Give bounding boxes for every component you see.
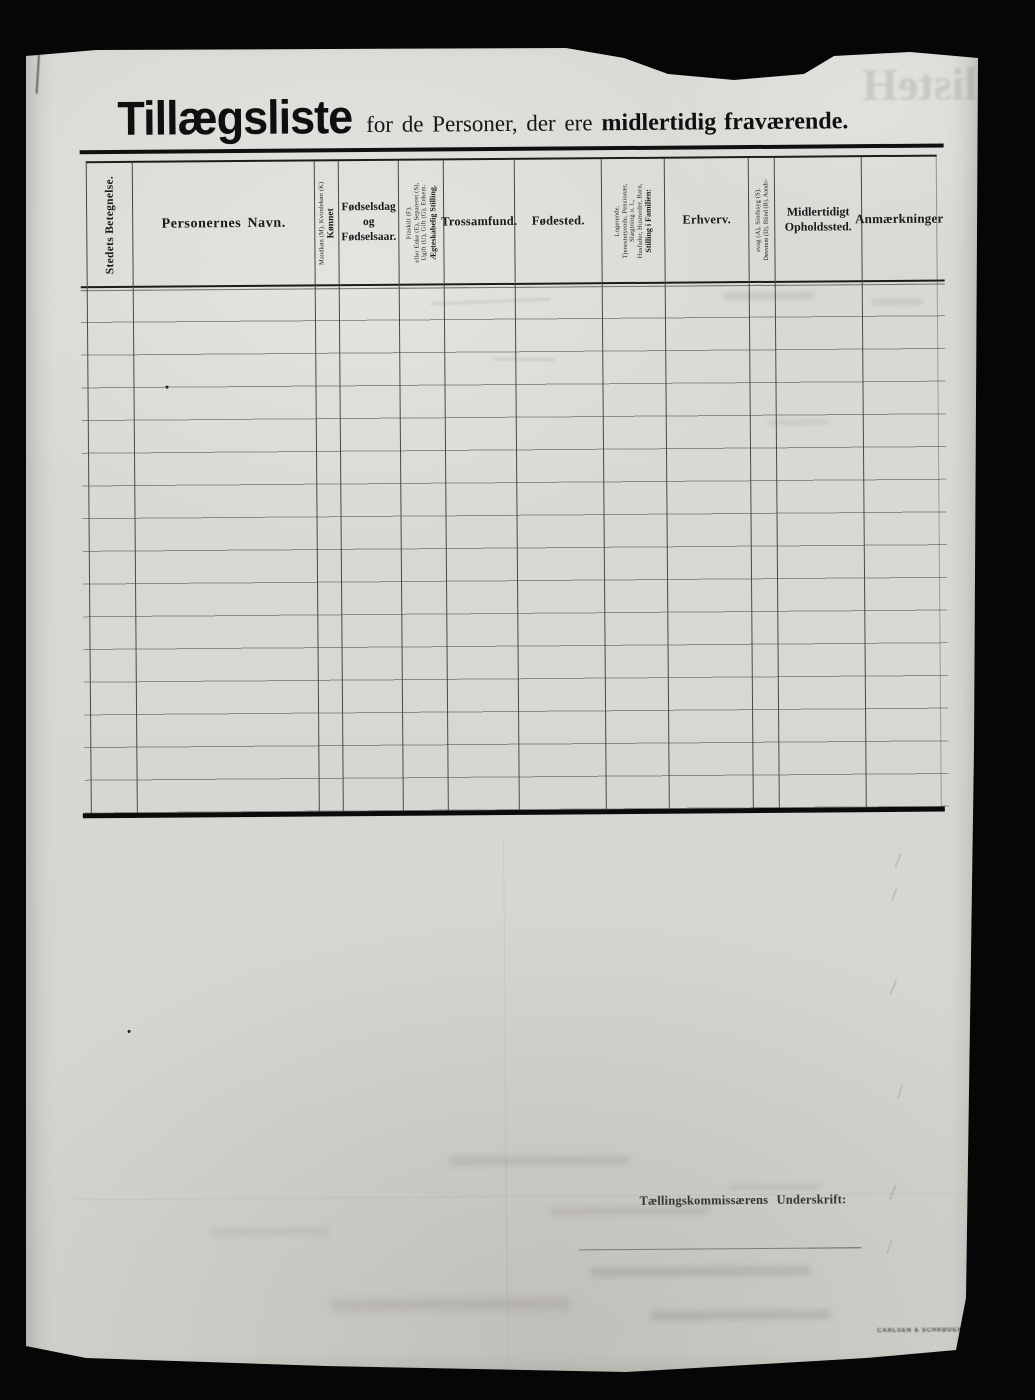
body-column-aegteskabelig-stilling [400,283,449,810]
col-header-erhverv: Erhverv. [665,158,750,282]
header-line: Trossamfund. [441,214,517,230]
bleedthrough-mark [897,1085,903,1099]
vertical-fold-crease [503,838,508,1363]
body-column-stilling-i-familien [603,282,670,809]
bleedthrough-mark [895,853,902,868]
signature-line [579,1247,861,1250]
body-column-trossamfund [445,283,520,811]
rotated-header-text: Stedets Betegnelse. [104,166,115,284]
header-subline: Mandkøn (M), Kvindekøn (K) [317,181,325,264]
header-line: Stilling i Familien: [643,189,652,253]
header-line: Kønnet [325,208,336,238]
form-content: listeH Tillægsliste for de Personer, der… [21,24,984,1383]
body-column-midlertidigt-opholdssted [776,280,867,808]
rotated-header-text: Døvstum (D), Blind (B), Aands- svag (A),… [754,160,770,278]
col-header-anmaerkninger: Anmærkninger [862,157,938,281]
header-subline: svag (A), Sindssyg (S). [754,187,762,251]
header-line: Midlertidigt [785,204,852,220]
col-header-fodselsdag: Fødselsdag og Fødselsaar. [339,161,400,284]
col-header-stedets-betegnelse: Stedets Betegnelse. [87,163,134,286]
form-title-emphasis: midlertidig fraværende. [601,108,848,137]
col-header-midlertidigt-opholdssted: Midlertidigt Opholdssted. [775,157,863,281]
bleedthrough-mark [886,1240,893,1254]
bleedthrough-mark [889,980,897,995]
col-header-trossamfund: Trossamfund. [444,160,516,284]
header-line: Opholdssted. [785,219,852,235]
bleedthrough-mark [730,1184,820,1191]
form-title: Tillægsliste for de Personer, der ere mi… [117,87,917,145]
header-line: Ægteskabelig Stilling. [428,185,438,260]
header-line: Fødselsdag [341,200,396,215]
header-line: Døvstum (D), Blind (B), Aands- [761,179,769,261]
body-column-personernes-navn [134,284,320,812]
ink-speck [128,1030,131,1033]
rotated-header-text: Kønnet Mandkøn (M), Kvindekøn (K) [317,164,336,282]
header-line: Erhverv. [682,212,731,227]
paper-sheet: listeH Tillægsliste for de Personer, der… [26,28,978,1380]
body-column-fodested [516,282,607,810]
scanned-census-form-page: { "document": { "ghost_bleedthrough": "l… [0,0,1035,1400]
bleedthrough-mark [210,1227,330,1236]
col-header-aegteskabelig-stilling: Ægteskabelig Stilling. Ugift (U), Gift (… [399,160,445,283]
printer-imprint: CARLSEN & SCHRØDER [877,1327,963,1334]
col-header-kjonnet: Kønnet Mandkøn (M), Kvindekøn (K) [315,161,340,284]
header-line: Anmærkninger [855,210,943,227]
header-line: Fødselsaar. [341,230,396,245]
body-column-erhverv [666,281,754,809]
col-header-fodested: Fødested. [515,159,603,283]
col-header-stilling-i-familien: Stilling i Familien: Husfader, Husmoder,… [602,159,666,282]
ink-speck [165,386,168,389]
table-header-row: Stedets Betegnelse. Personernes Navn. Kø… [86,157,938,287]
body-column-stedets-betegnelse [88,286,138,813]
body-column-dovstum-blind [750,281,780,808]
bleedthrough-mark [891,887,898,901]
form-title-mid: for de Personer, der ere [366,110,592,138]
bleedthrough-mark [450,1155,630,1166]
bleedthrough-mark [590,1266,810,1278]
table-body-grid [87,280,942,814]
body-column-anmaerkninger [863,280,942,808]
bleedthrough-mark [651,1309,831,1320]
form-title-main: Tillægsliste [117,90,352,147]
col-header-dovstum-blind: Døvstum (D), Blind (B), Aands- svag (A),… [749,158,776,281]
col-header-personernes-navn: Personernes Navn. [133,161,316,285]
rotated-header-text: Ægteskabelig Stilling. Ugift (U), Gift (… [405,163,437,281]
header-line: Fødested. [532,213,585,228]
header-line: Personernes Navn. [162,215,286,232]
header-line: og [341,215,396,230]
rotated-header-text: Stilling i Familien: Husfader, Husmoder,… [613,161,653,279]
bleedthrough-mark [331,1297,571,1311]
body-column-fodselsdag [340,284,404,811]
header-line: Stedets Betegnelse. [104,175,115,273]
